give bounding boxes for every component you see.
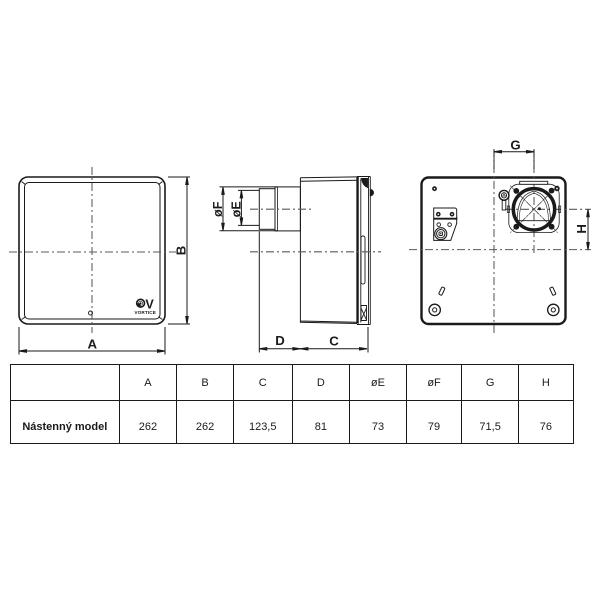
svg-text:C: C bbox=[329, 333, 339, 348]
svg-text:D: D bbox=[275, 333, 285, 348]
svg-text:A: A bbox=[88, 337, 98, 352]
svg-text:H: H bbox=[574, 224, 589, 234]
svg-text:øF: øF bbox=[211, 201, 225, 217]
svg-text:G: G bbox=[510, 138, 520, 153]
svg-text:øE: øE bbox=[230, 201, 244, 217]
svg-text:VORTICE: VORTICE bbox=[134, 310, 156, 315]
svg-text:B: B bbox=[173, 246, 188, 256]
